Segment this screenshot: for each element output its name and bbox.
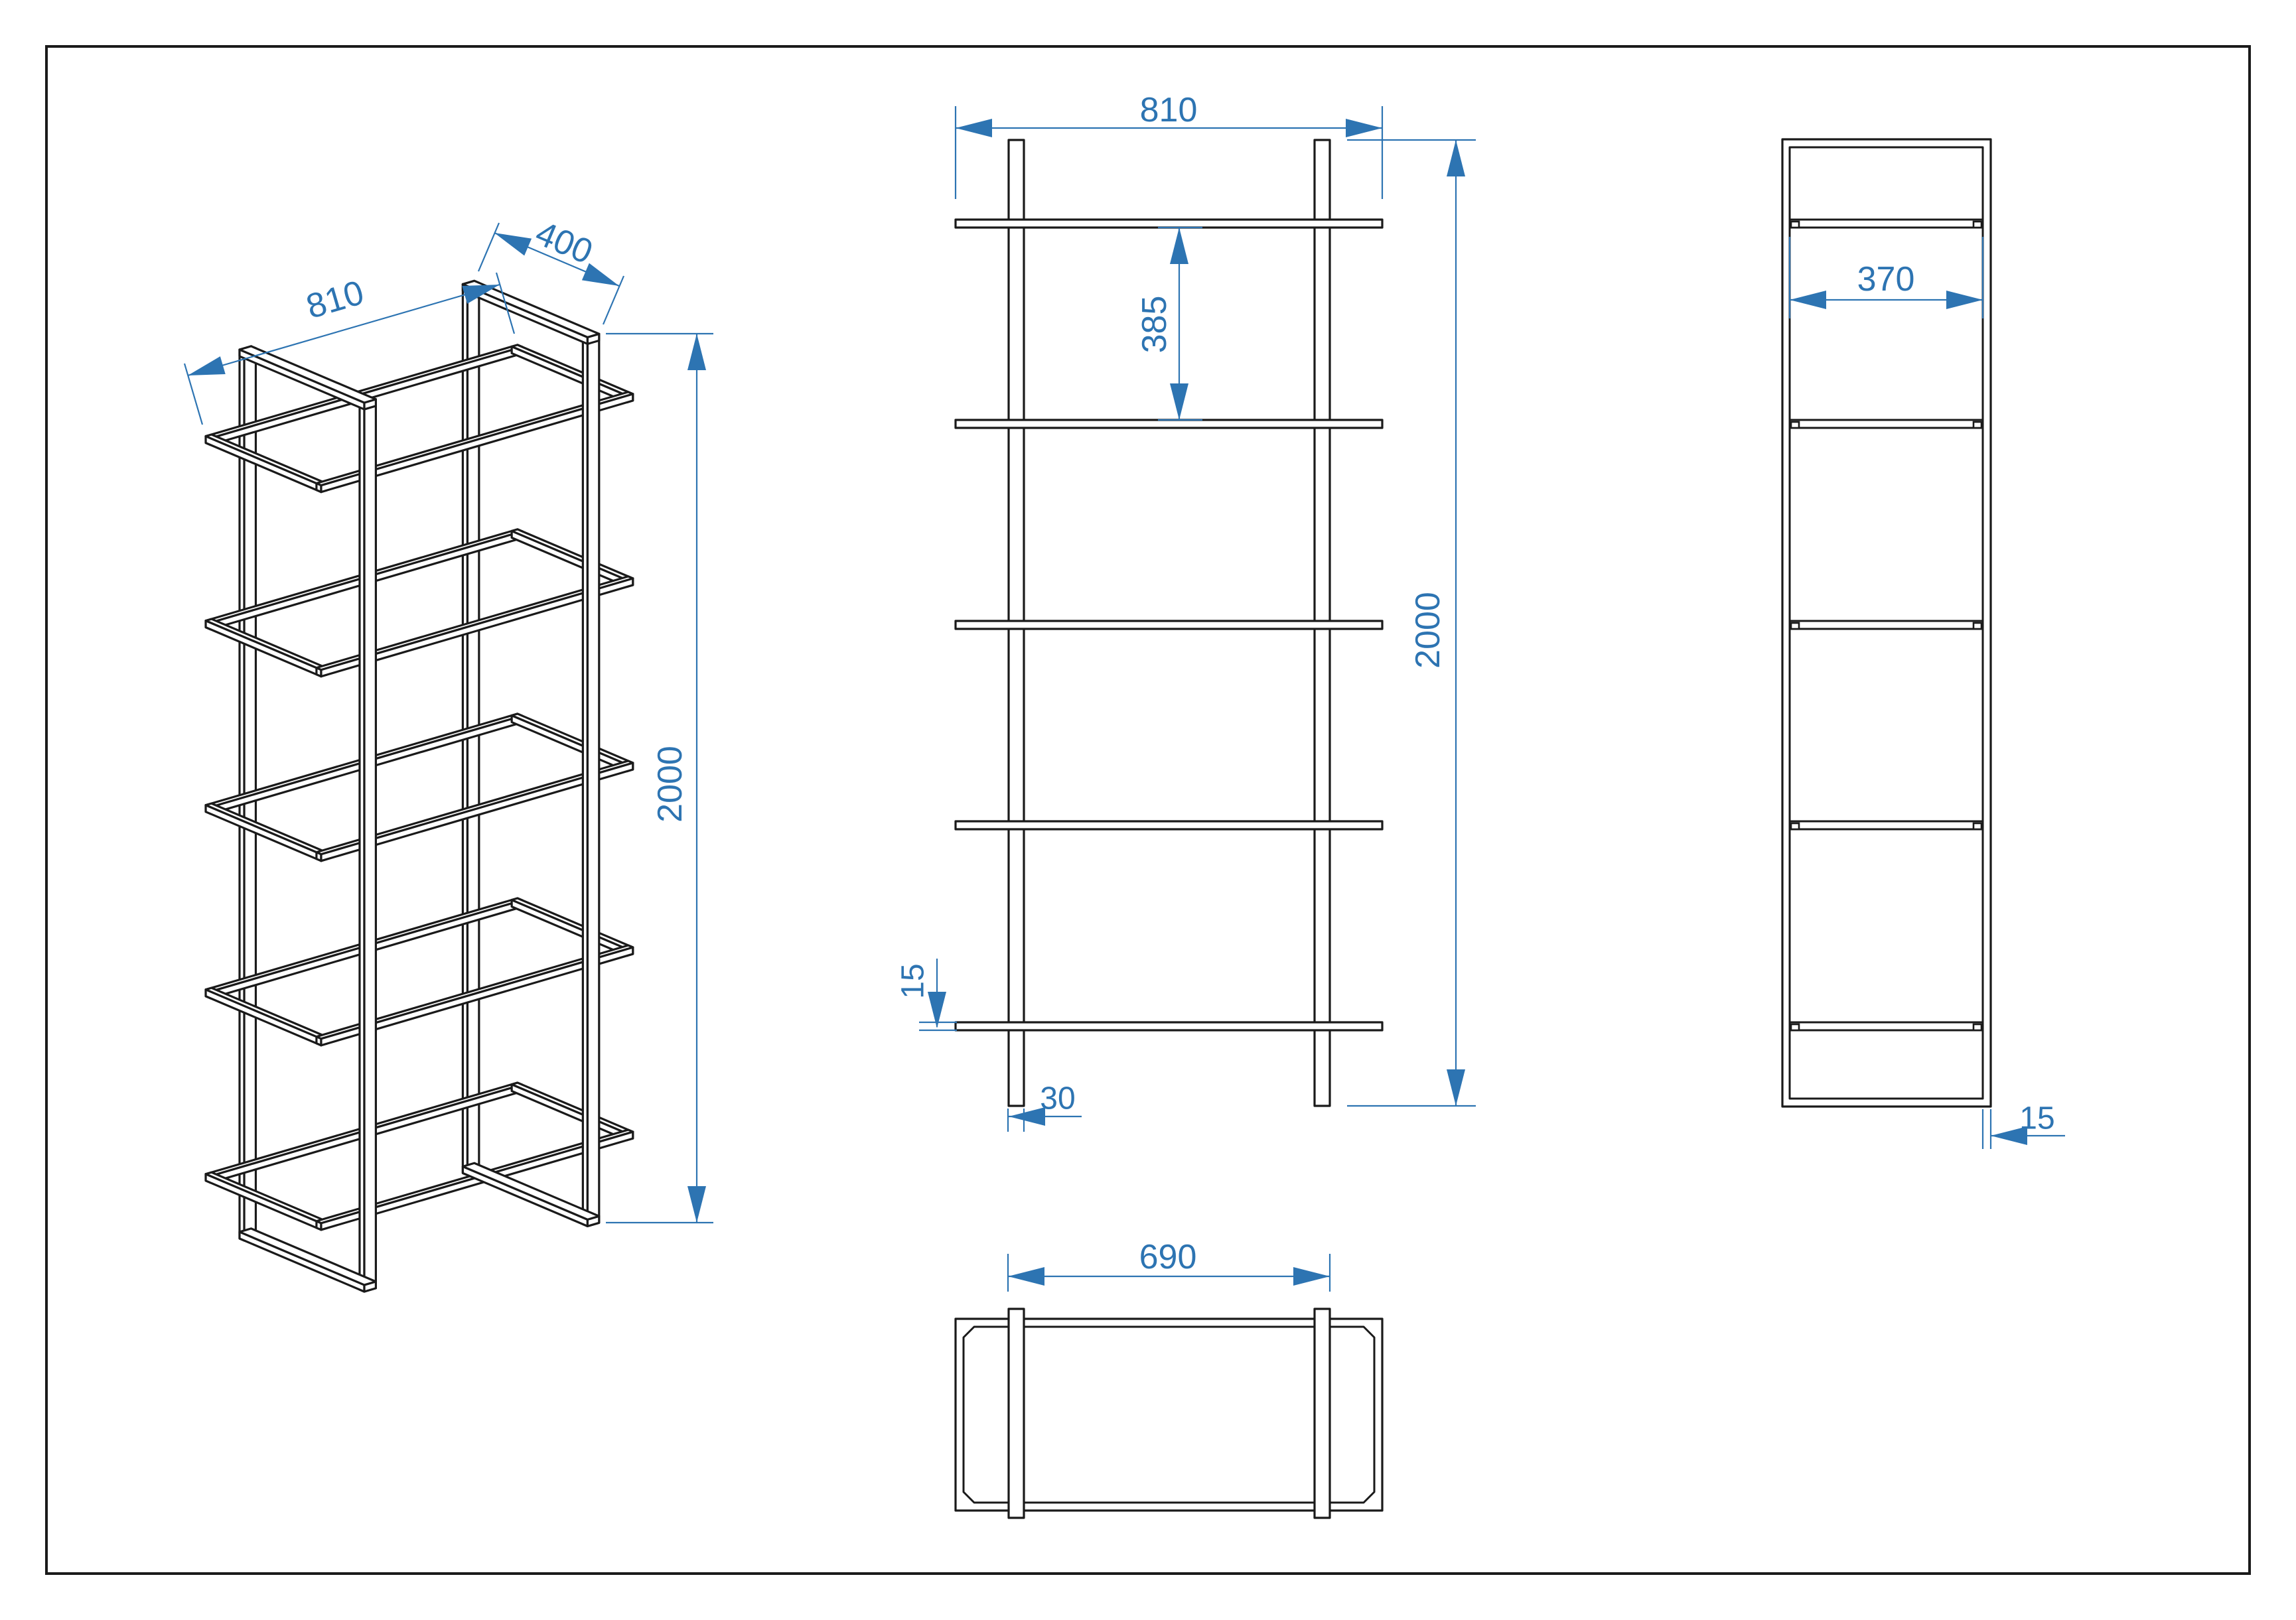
dimension-arrow — [1170, 228, 1188, 264]
front-shelf-4 — [956, 821, 1382, 829]
top-view: 690 — [956, 1238, 1382, 1518]
iso-height-label: 2000 — [651, 746, 689, 823]
top-right-post — [1315, 1309, 1330, 1518]
dimension-arrow — [1293, 1267, 1330, 1286]
side-inner-depth-label: 370 — [1857, 260, 1915, 299]
front-view: 810 385 2000 15 30 — [896, 91, 1476, 1132]
tube-face — [206, 988, 327, 1039]
tube-face — [364, 399, 376, 1292]
top-post-spacing-label: 690 — [1139, 1238, 1197, 1276]
dimension-arrow — [188, 356, 226, 375]
tube-face — [206, 1172, 327, 1223]
front-shelf-1 — [956, 220, 1382, 228]
tube-face — [206, 435, 327, 486]
iso-depth-label: 400 — [530, 214, 599, 271]
tube-face — [240, 1229, 376, 1285]
front-width-label: 810 — [1140, 91, 1198, 129]
dimension-arrow — [494, 233, 532, 255]
dimension-arrow — [1009, 1107, 1045, 1126]
front-height-label: 2000 — [1409, 592, 1447, 669]
dimension-arrow — [1346, 119, 1382, 137]
iso-height-dimension: 2000 — [606, 334, 713, 1223]
front-shelf-gap-dimension: 385 — [1135, 228, 1202, 420]
dimension-arrow — [582, 263, 619, 286]
dimension-arrow — [1991, 1126, 2027, 1145]
iso-width-label: 810 — [302, 273, 368, 326]
front-shelf-thickness-label: 15 — [896, 963, 931, 998]
tube-face — [512, 714, 633, 765]
dimension-arrow — [687, 334, 706, 370]
front-shelf-thickness-dimension: 15 — [896, 959, 958, 1030]
tube-face — [512, 898, 633, 949]
top-left-post — [1009, 1309, 1024, 1518]
tube-face — [206, 619, 327, 670]
technical-drawing-canvas: 810 400 2000 810 — [0, 0, 2296, 1620]
front-post-width-label: 30 — [1040, 1081, 1075, 1116]
isometric-shelf-wireframe — [206, 281, 633, 1292]
dimension-arrow — [1447, 1069, 1465, 1106]
side-view: 370 15 — [1782, 139, 2065, 1149]
front-shelf-2 — [956, 420, 1382, 428]
top-post-spacing-dimension: 690 — [1008, 1238, 1330, 1292]
front-shelf-5 — [956, 1022, 1382, 1030]
tube-face — [512, 529, 633, 580]
tube-face — [206, 803, 327, 854]
dimension-arrow — [687, 1186, 706, 1223]
extension-line — [478, 223, 499, 271]
front-shelf-gap-label: 385 — [1135, 296, 1174, 354]
front-shelf-3 — [956, 621, 1382, 629]
drawing-sheet: 810 400 2000 810 — [0, 0, 2296, 1620]
tube-face — [512, 345, 633, 396]
dimension-arrow — [956, 119, 992, 137]
tube-face — [463, 1163, 599, 1219]
isometric-view: 810 400 2000 — [184, 214, 713, 1292]
tube-face — [512, 1083, 633, 1134]
dimension-arrow — [1008, 1267, 1044, 1286]
dimension-arrow — [1447, 140, 1465, 176]
dimension-arrow — [1170, 383, 1188, 420]
tube-face — [587, 334, 599, 1226]
